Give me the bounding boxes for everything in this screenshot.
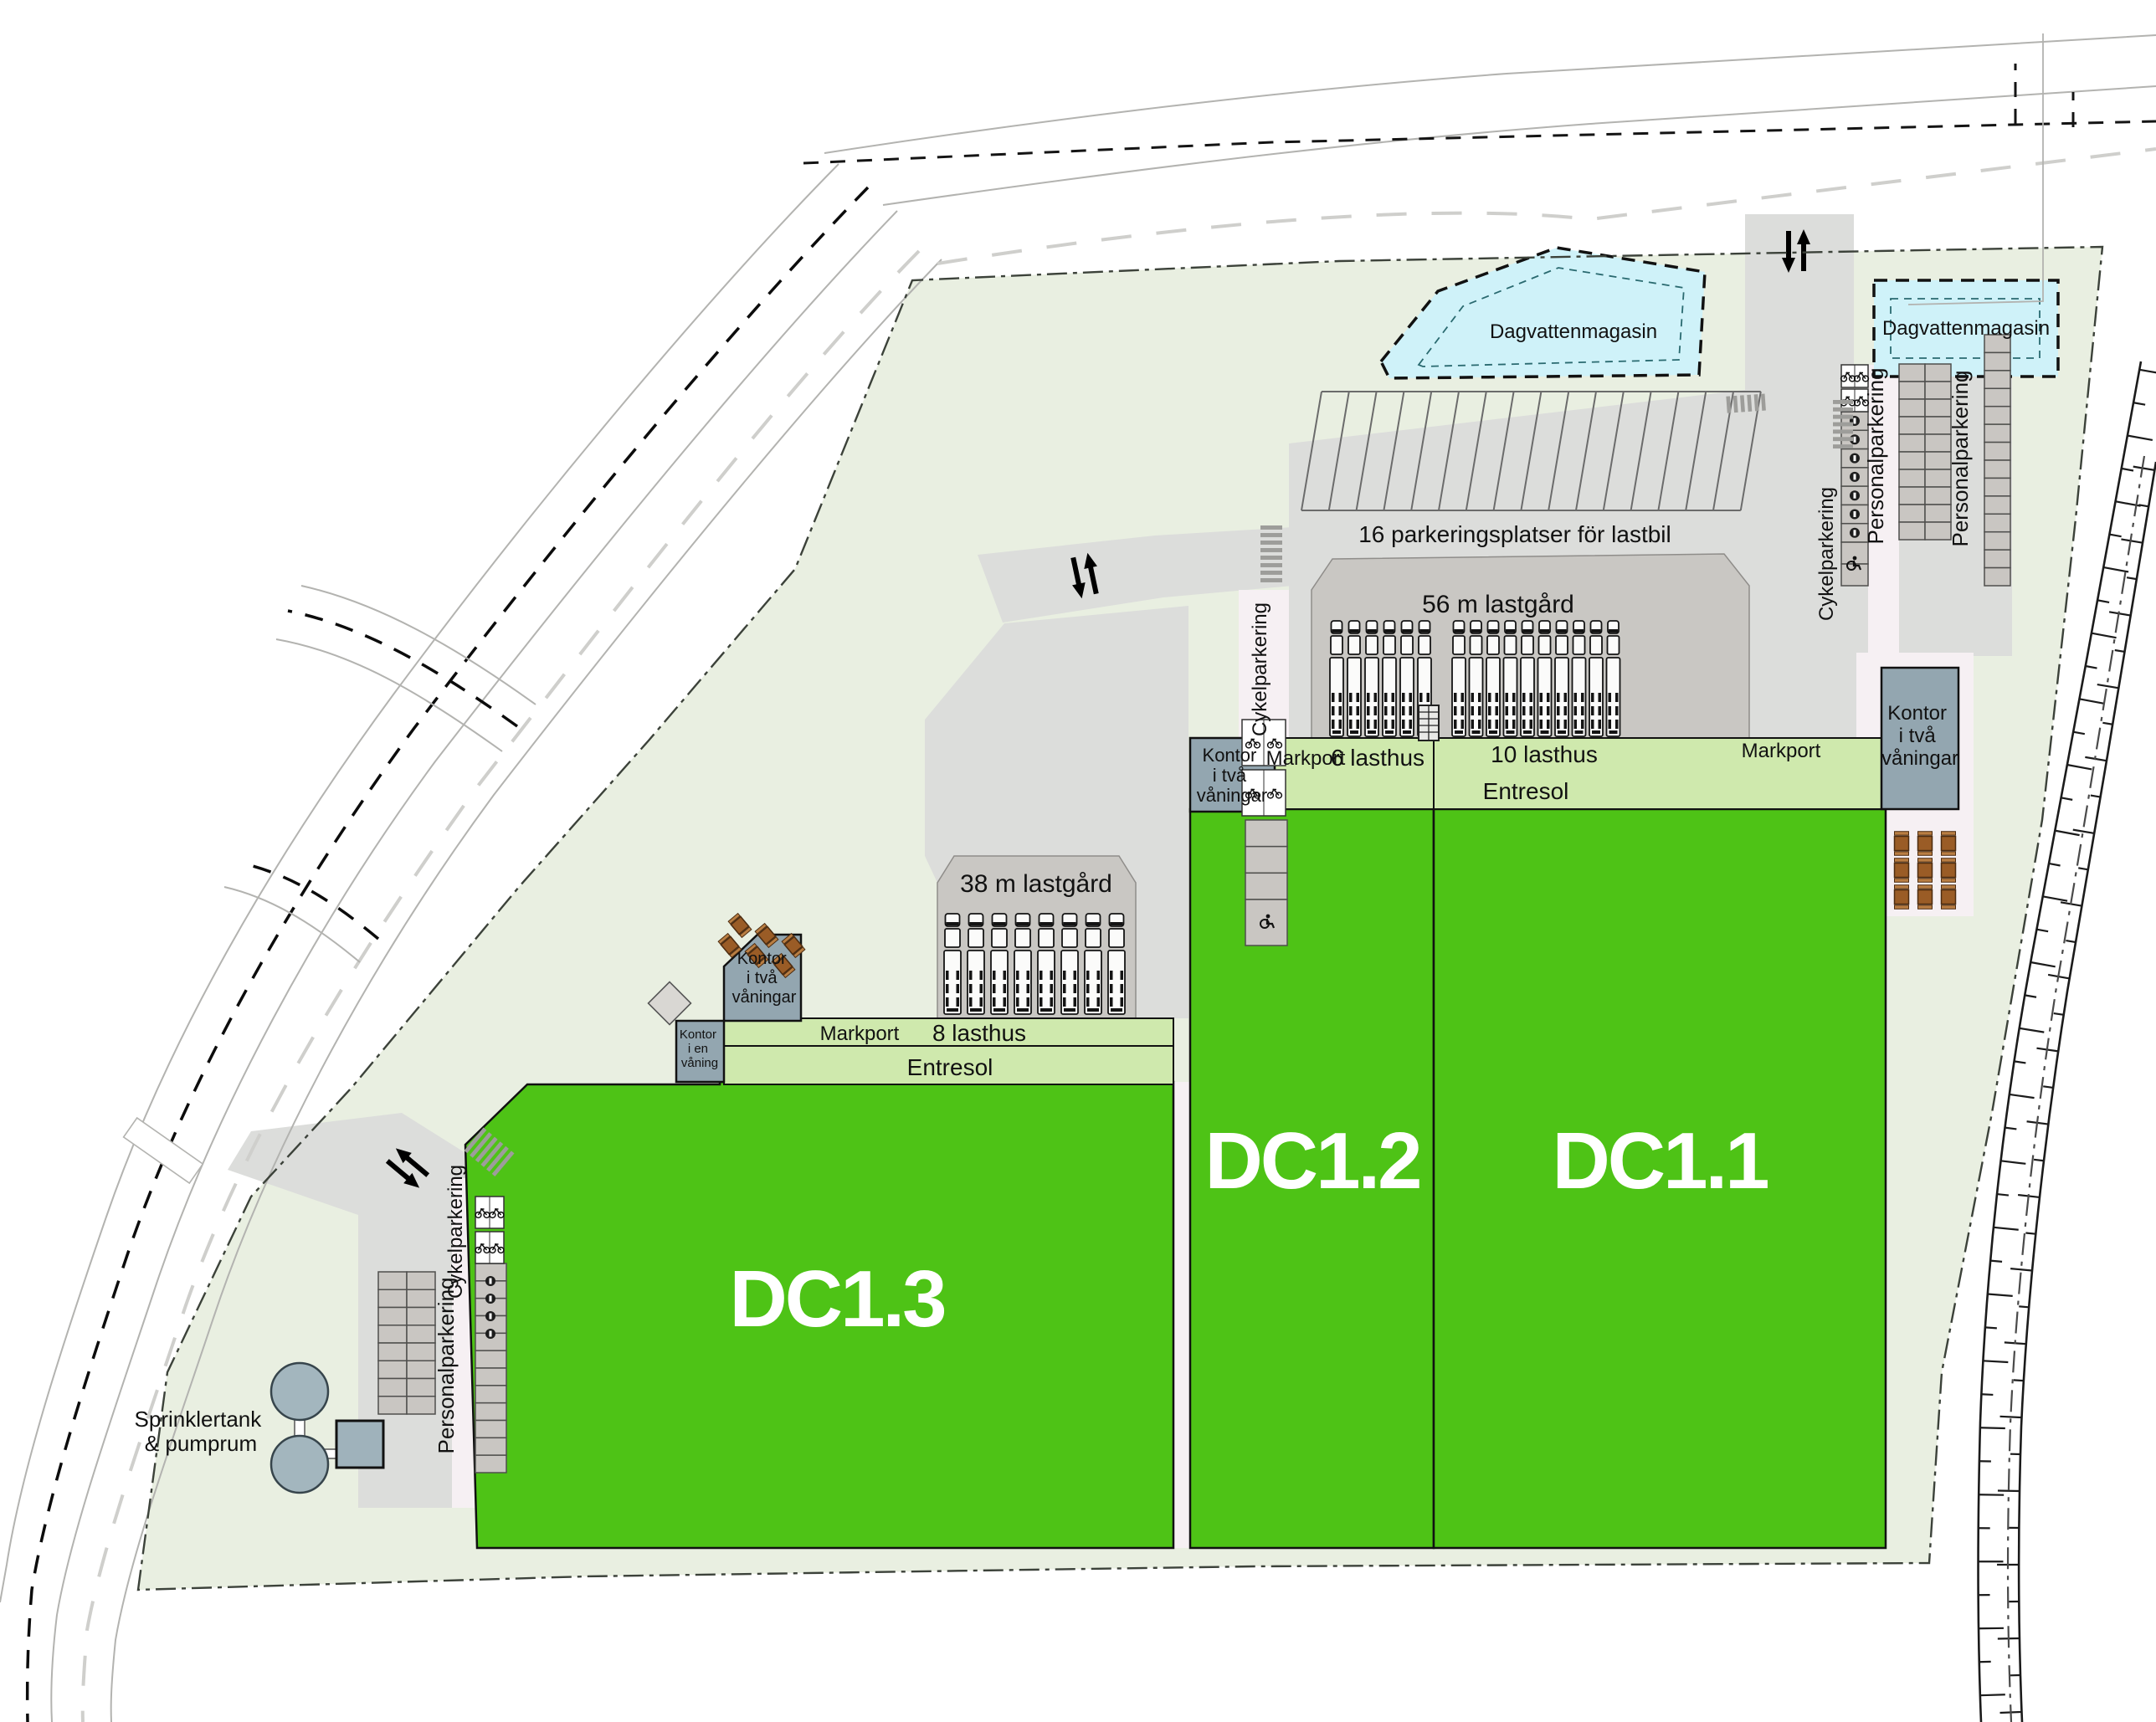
bike-parking-mid-label: Cykelparkering (1249, 602, 1271, 736)
dc13-entresol-label: Entresol (907, 1054, 993, 1080)
staff-parking-ne-west-label: Personalparkering (1863, 367, 1888, 544)
yard-56-label: 56 m lastgård (1422, 591, 1574, 618)
bike-parking-sw-label: Cykelparkering (444, 1165, 467, 1299)
dc11-name: DC1.1 (1552, 1116, 1768, 1206)
pump-room (336, 1421, 383, 1468)
road-crossing-island (124, 1118, 203, 1183)
yard-38-label: 38 m lastgård (960, 870, 1112, 898)
staff-parking-ne-east-label: Personalparkering (1948, 370, 1973, 546)
bike-parking-ne-label: Cykelparkering (1815, 487, 1838, 621)
dc12-lasthus-label: 6 lasthus (1331, 745, 1424, 771)
truck-parking-label: 16 parkeringsplatser för lastbil (1358, 521, 1671, 547)
site-plan-canvas: 16 parkeringsplatser för lastbil 56 m la… (0, 0, 2156, 1722)
dc12-name: DC1.2 (1204, 1116, 1419, 1206)
dc13-markport-label: Markport (820, 1022, 900, 1045)
dc11-markport-label: Markport (1742, 740, 1821, 762)
site-plan-page: 16 parkeringsplatser för lastbil 56 m la… (0, 0, 2156, 1722)
sprinkler-label: Sprinklertank & pumprum (135, 1407, 268, 1456)
stair-icon (1419, 705, 1439, 741)
stormwater-east-label: Dagvattenmagasin (1882, 317, 2050, 340)
dc13-lasthus-label: 8 lasthus (932, 1020, 1026, 1046)
dc11-entresol-label: Entresol (1483, 778, 1569, 804)
dc11-lasthus-label: 10 lasthus (1491, 741, 1598, 767)
staff-parking-sw-label: Personalparkering (434, 1277, 459, 1453)
dc13-name: DC1.3 (729, 1254, 944, 1344)
stormwater-west-label: Dagvattenmagasin (1490, 320, 1657, 343)
walkway-gap-dc13-dc12 (1173, 1082, 1190, 1548)
